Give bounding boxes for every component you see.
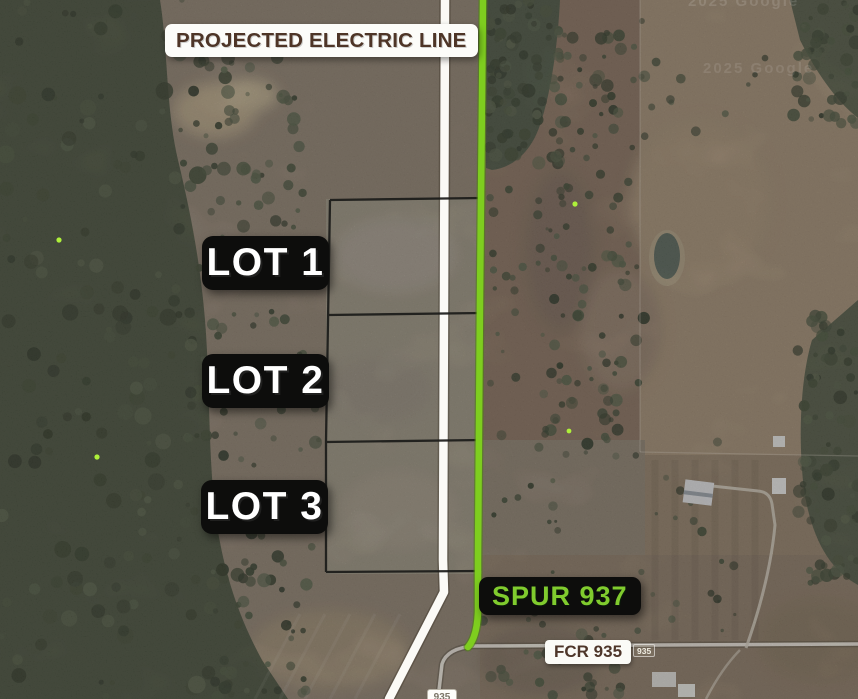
lot-1-label: LOT 1 [202, 236, 329, 290]
lot-3-label: LOT 3 [201, 480, 328, 534]
road-935-shield: 935 [427, 689, 457, 699]
lot-2-label: LOT 2 [202, 354, 329, 408]
google-watermark-top: 2025 Google [688, 0, 799, 10]
projected-electric-line-label: PROJECTED ELECTRIC LINE [165, 24, 478, 57]
satellite-map: PROJECTED ELECTRIC LINE LOT 1 LOT 2 LOT … [0, 0, 858, 699]
spur-937-label: SPUR 937 [479, 577, 641, 615]
annotation-layer: PROJECTED ELECTRIC LINE LOT 1 LOT 2 LOT … [0, 0, 858, 699]
road-935-small-label: 935 [633, 644, 655, 657]
fcr-935-label: FCR 935 [545, 640, 631, 664]
google-watermark: 2025 Google [703, 60, 814, 77]
